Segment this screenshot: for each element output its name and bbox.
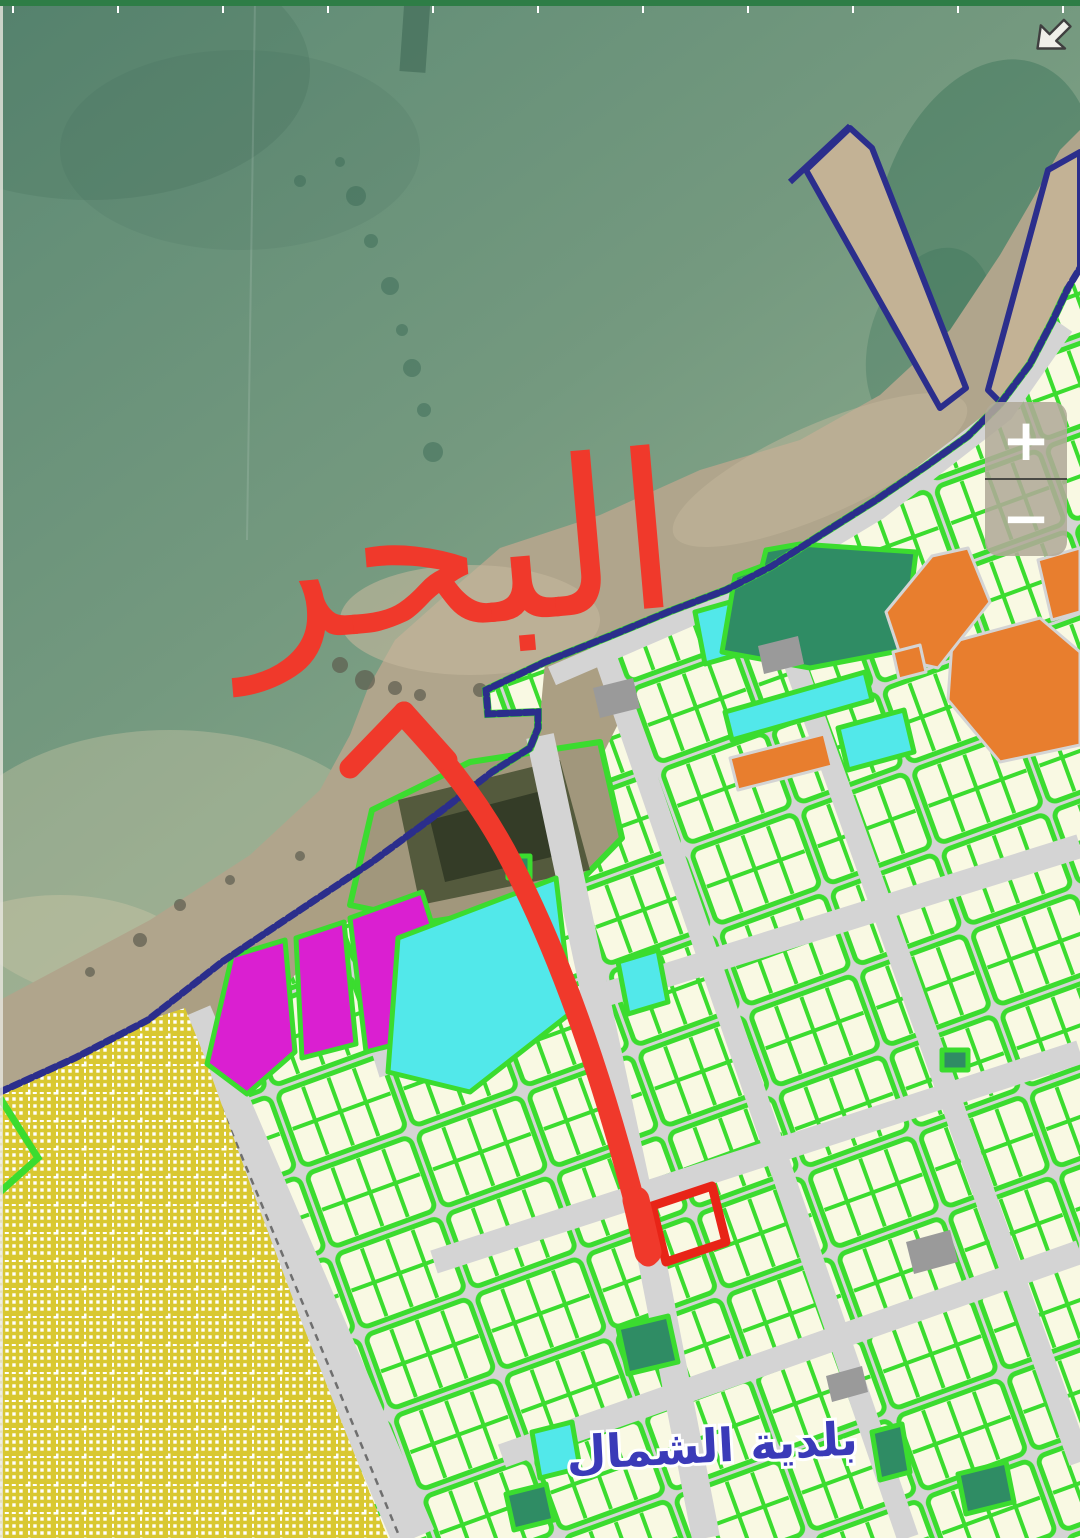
map-viewport[interactable]: بلدية الشمال البحر xyxy=(0,0,1080,1538)
top-bar xyxy=(0,0,1080,6)
left-edge-strip xyxy=(0,6,3,1538)
resize-arrow-icon[interactable] xyxy=(1032,10,1076,54)
zoom-out-button[interactable]: − xyxy=(985,480,1067,556)
map-application-window: بلدية الشمال البحر + − xyxy=(0,0,1080,1538)
sea-annotation-text: البحر xyxy=(211,406,688,698)
zoom-in-button[interactable]: + xyxy=(985,402,1067,480)
zoom-control: + − xyxy=(985,402,1067,556)
